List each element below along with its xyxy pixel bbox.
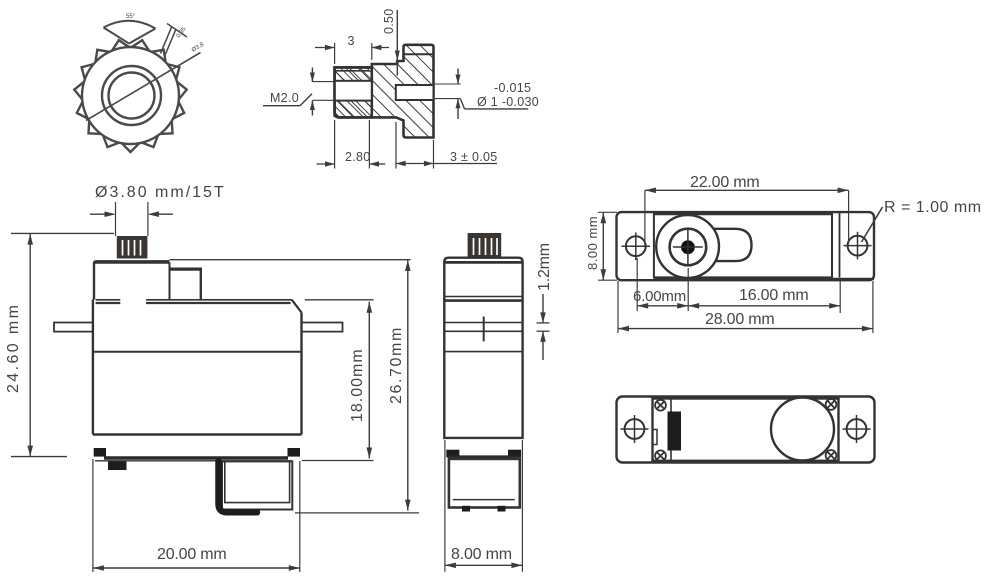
svg-text:0.50: 0.50: [382, 8, 396, 34]
svg-text:55°: 55°: [126, 14, 136, 20]
svg-text:Ø3.8: Ø3.8: [191, 42, 206, 54]
svg-text:20.00 mm: 20.00 mm: [157, 546, 227, 563]
svg-text:8.00 mm: 8.00 mm: [451, 546, 512, 563]
svg-text:M2.0: M2.0: [270, 91, 299, 105]
svg-text:3 ± 0.05: 3 ± 0.05: [450, 150, 498, 164]
svg-text:28.00 mm: 28.00 mm: [705, 311, 775, 328]
svg-text:1.2mm: 1.2mm: [536, 243, 553, 291]
svg-text:R = 1.00 mm: R = 1.00 mm: [884, 199, 982, 216]
svg-text:6.00mm: 6.00mm: [633, 288, 686, 305]
svg-text:24.60 mm: 24.60 mm: [5, 303, 22, 393]
svg-text:22.00 mm: 22.00 mm: [690, 174, 760, 191]
svg-text:Ø3.80 mm/15T: Ø3.80 mm/15T: [95, 184, 226, 201]
svg-text:26.70mm: 26.70mm: [388, 326, 405, 404]
svg-text:2.80: 2.80: [345, 150, 371, 164]
svg-text:Ø 1 -0.030: Ø 1 -0.030: [477, 95, 539, 109]
svg-text:3: 3: [348, 34, 355, 48]
svg-text:16.00 mm: 16.00 mm: [739, 287, 809, 304]
svg-text:8.00 mm: 8.00 mm: [585, 216, 600, 270]
svg-text:18.00mm: 18.00mm: [349, 348, 366, 422]
svg-text:-0.015: -0.015: [494, 81, 531, 95]
